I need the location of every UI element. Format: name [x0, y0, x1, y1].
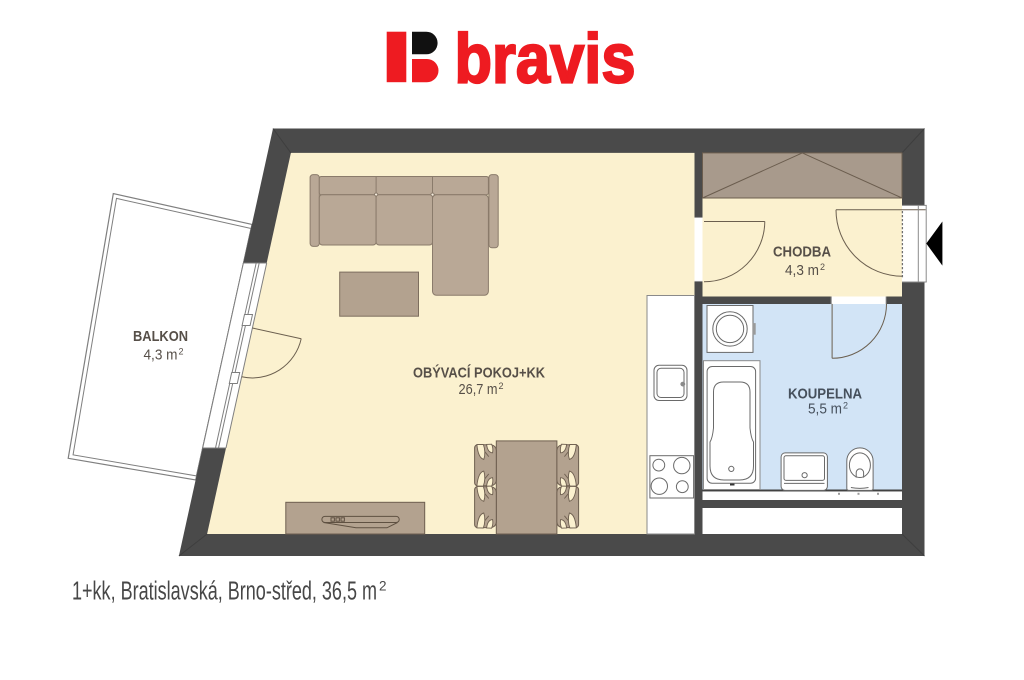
- svg-text:BALKON: BALKON: [133, 328, 188, 345]
- svg-text:2: 2: [499, 381, 504, 391]
- svg-text:2: 2: [379, 579, 387, 594]
- svg-text:26,7 m: 26,7 m: [459, 381, 498, 398]
- svg-text:2: 2: [820, 262, 825, 272]
- svg-text:5,5 m: 5,5 m: [808, 401, 842, 418]
- svg-text:2: 2: [179, 347, 184, 357]
- svg-text:4,3 m: 4,3 m: [144, 347, 178, 364]
- svg-text:bravis: bravis: [455, 20, 636, 98]
- svg-text:OBÝVACÍ POKOJ+KK: OBÝVACÍ POKOJ+KK: [413, 364, 545, 382]
- svg-text:2: 2: [843, 401, 848, 411]
- svg-text:CHODBA: CHODBA: [773, 244, 831, 261]
- svg-text:1+kk, Bratislavská, Brno-střed: 1+kk, Bratislavská, Brno-střed, 36,5 m: [72, 578, 377, 606]
- svg-text:4,3 m: 4,3 m: [785, 262, 819, 279]
